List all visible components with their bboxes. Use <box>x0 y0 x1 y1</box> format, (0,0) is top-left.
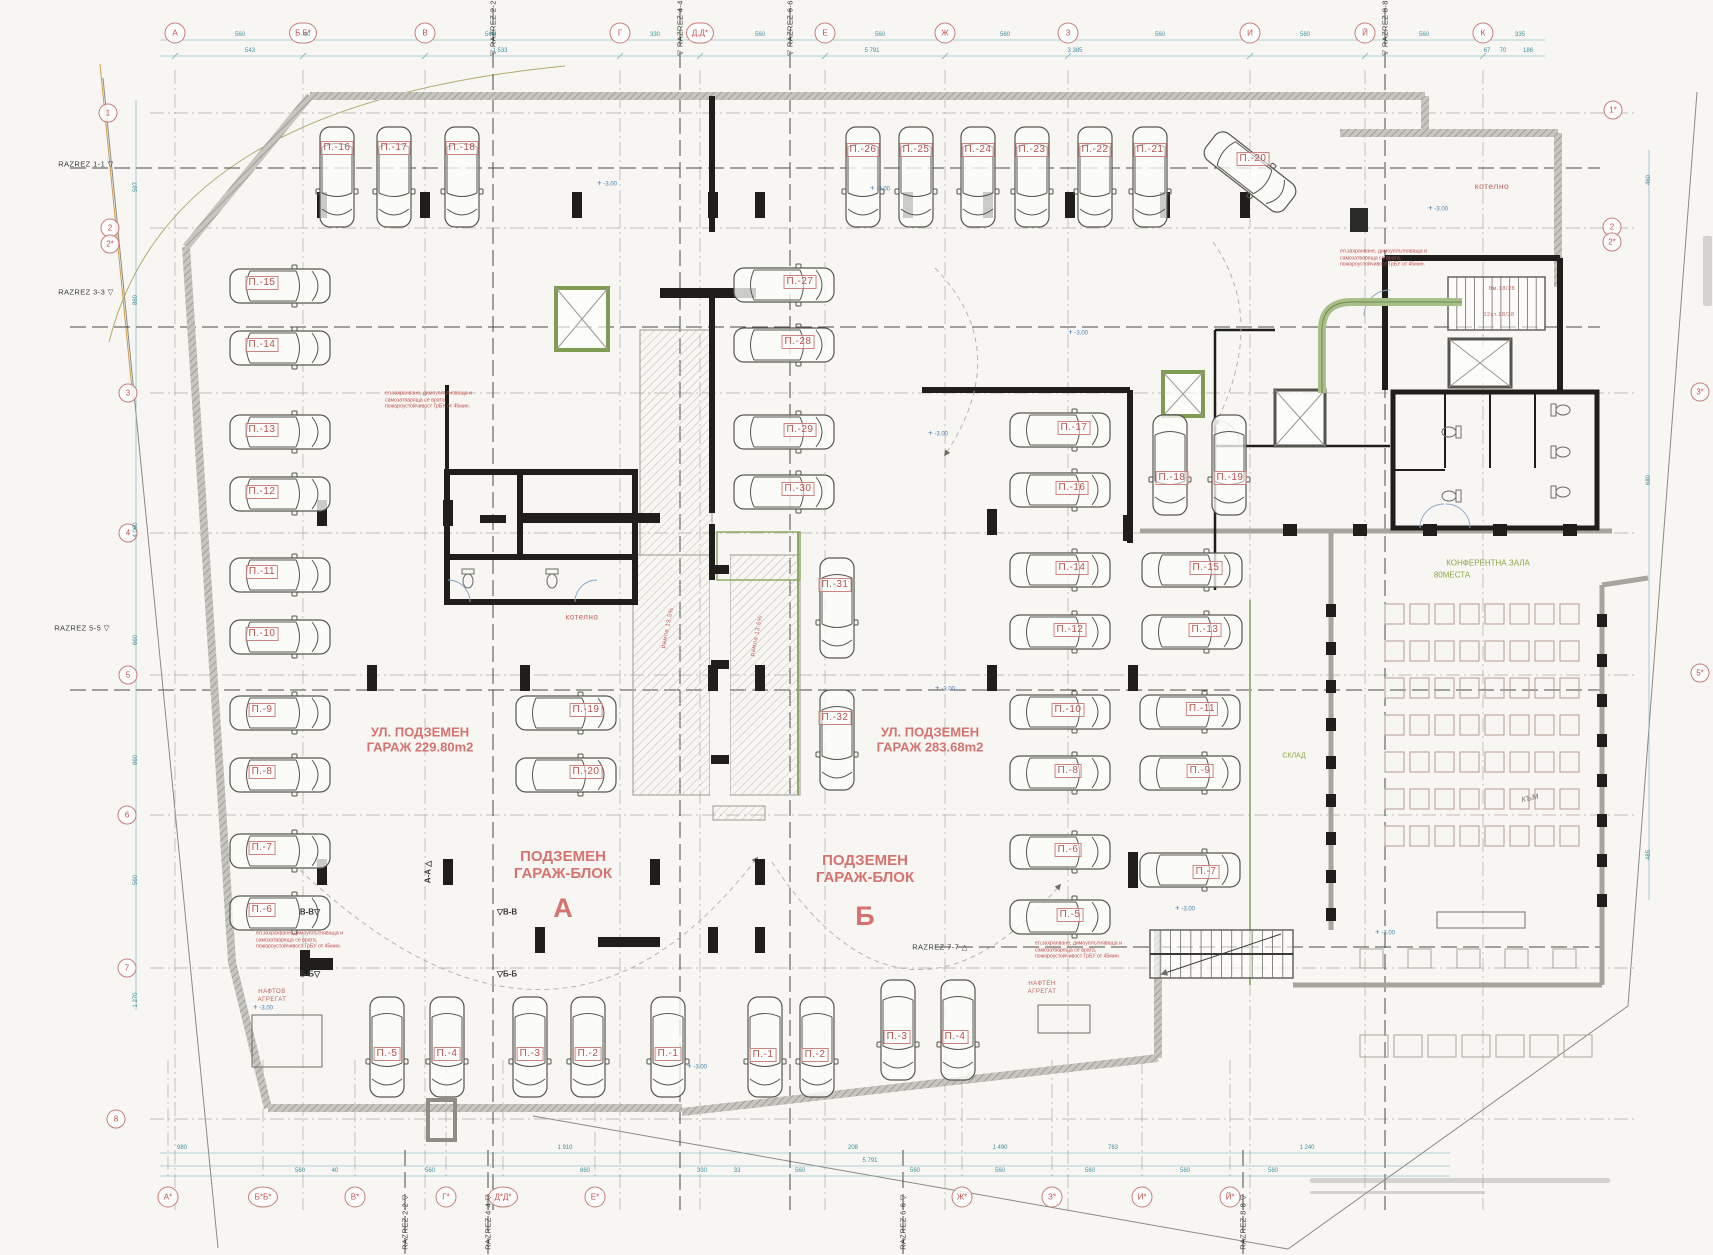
dim-label: 860 <box>133 295 139 305</box>
dim-label: 330 <box>697 1168 707 1174</box>
dim-label: 67 <box>1484 48 1491 54</box>
dim-label: 460 <box>1646 175 1652 185</box>
dim-label: 4 060 <box>133 522 139 537</box>
dim-label: 5 791 <box>862 1158 877 1164</box>
dim-label: 5 791 <box>864 48 879 54</box>
dim-label: 860 <box>580 1168 590 1174</box>
grid-bubble-top: Ж <box>935 23 956 44</box>
parking-spot-label: П.-14 <box>1056 561 1089 575</box>
grid-bubble-row: 3* <box>1691 383 1710 402</box>
parking-spot-label: П.-10 <box>1052 703 1085 717</box>
ramp-label: рампа 13.5% <box>750 615 765 657</box>
parking-spot-label: П.-8 <box>1055 764 1082 778</box>
grid-bubble-row: 1 <box>99 104 118 123</box>
grid-bubble-bottom: А* <box>158 1187 179 1208</box>
grid-bubble-bottom: И* <box>1132 1187 1153 1208</box>
level-mark: + -3.00 <box>1428 204 1448 213</box>
dim-label: 1 240 <box>1299 1145 1314 1151</box>
scan-smudge <box>1310 1191 1485 1194</box>
section-cut-marker: В-В▽ <box>300 908 320 917</box>
parking-spot-label: П.-15 <box>246 276 279 290</box>
grid-bubble-row: 8 <box>107 1110 126 1129</box>
fire-door-annotation: ел.захранване, димоуплътняваща исамозатв… <box>385 390 472 410</box>
grid-bubble-top: З <box>1058 23 1079 44</box>
parking-spot-label: П.-29 <box>784 423 817 437</box>
parking-spot-label: П.-27 <box>784 275 817 289</box>
room-label: КОНФЕРЕНТНА ЗАЛА <box>1446 559 1530 568</box>
room-label: АГРЕГАТ <box>1028 989 1057 995</box>
parking-spot-label: П.-5 <box>1057 908 1084 922</box>
grid-bubble-top: Е <box>815 23 836 44</box>
parking-spot-label: П.-21 <box>1134 143 1167 157</box>
dim-label: 1 533 <box>492 48 507 54</box>
parking-spot-label: П.-19 <box>570 703 603 717</box>
dim-label: 560 <box>1300 32 1310 38</box>
grid-bubble-row: 7 <box>118 959 137 978</box>
dim-label: 560 <box>1268 1168 1278 1174</box>
parking-spot-label: П.-17 <box>1058 421 1091 435</box>
grid-bubble-row: 6 <box>118 806 137 825</box>
parking-spot-label: П.-28 <box>782 335 815 349</box>
room-label: 12ст.18/28 <box>1483 312 1514 318</box>
parking-spot-label: П.-4 <box>942 1030 969 1044</box>
dim-label: 186 <box>1523 48 1533 54</box>
section-label-mid: RAZREZ 7-7 △ <box>912 943 968 952</box>
grid-bubble-bottom: Е* <box>585 1187 606 1208</box>
grid-bubble-row: 3 <box>119 384 138 403</box>
parking-spot-label: П.-16 <box>321 141 354 155</box>
grid-bubble-row: 2* <box>1603 233 1622 252</box>
dim-label: 560 <box>1180 1168 1190 1174</box>
parking-spot-label: П.-12 <box>1054 623 1087 637</box>
section-cut-marker: А-А △ <box>424 861 433 884</box>
room-label: котелно <box>566 613 599 622</box>
room-label: към <box>1520 791 1540 805</box>
garage-area-text: УЛ. ПОДЗЕМЕНГАРАЖ 283.68m2 <box>877 725 984 754</box>
dim-label: 560 <box>1000 32 1010 38</box>
dim-label: 543 <box>245 48 255 54</box>
dim-label: 33 <box>734 1168 741 1174</box>
section-label-top: ▽ RAZREZ 8-8 <box>1381 0 1390 56</box>
section-label-left: RAZREZ 1-1 ▽ <box>58 160 114 169</box>
level-mark: + -3.00 <box>928 429 948 438</box>
dim-label: 597 <box>133 182 139 192</box>
parking-spot-label: П.-7 <box>1193 865 1220 879</box>
room-label: котелно <box>1475 181 1509 191</box>
dim-label: 680 <box>1646 475 1652 485</box>
dim-label: 1 490 <box>992 1145 1007 1151</box>
section-label-top: ▽ RAZREZ 6-6 <box>786 0 795 56</box>
parking-spot-label: П.-32 <box>819 711 852 725</box>
section-cut-marker: ▽В-В <box>497 908 517 917</box>
parking-spot-label: П.-10 <box>246 627 279 641</box>
parking-spot-label: П.-6 <box>249 903 276 917</box>
parking-spot-label: П.-30 <box>782 482 815 496</box>
room-label: СКЛАД <box>1282 753 1305 760</box>
dim-label: 3 385 <box>1067 48 1082 54</box>
level-mark: + -3.00 <box>687 1062 707 1071</box>
parking-spot-label: П.-2 <box>802 1048 829 1062</box>
grid-bubble-top: К <box>1473 23 1494 44</box>
parking-spot-label: П.-15 <box>1190 561 1223 575</box>
grid-bubble-bottom: Г* <box>436 1187 457 1208</box>
dim-label: 70 <box>1500 48 1507 54</box>
section-label-bottom: RAZREZ 8-8 ▽ <box>1239 1194 1248 1250</box>
parking-spot-label: П.-17 <box>378 141 411 155</box>
parking-spot-label: П.-8 <box>249 765 276 779</box>
grid-bubble-top: В <box>415 23 436 44</box>
grid-bubble-bottom: Б*Б* <box>248 1187 278 1208</box>
room-label: 8м.18/28 <box>1489 286 1515 292</box>
section-cut-marker: Б-Б▽ <box>300 970 320 979</box>
grid-bubble-top: И <box>1240 23 1261 44</box>
dim-label: 560 <box>910 1168 920 1174</box>
grid-bubble-row: 1* <box>1604 101 1623 120</box>
room-label: НАФТОВ <box>258 989 285 995</box>
floor-plan-canvas: АБ.Б*ВГД.Д*ЕЖЗИЙКА*Б*Б*В*Г*Д*Д*Е*Ж*З*И*Й… <box>0 0 1713 1255</box>
scan-smudge <box>1310 1178 1610 1183</box>
dim-label: 560 <box>485 32 495 38</box>
parking-spot-label: П.-24 <box>962 143 995 157</box>
parking-spot-label: П.-22 <box>1079 143 1112 157</box>
grid-bubble-top: Д.Д* <box>686 23 714 44</box>
grid-bubble-top: А <box>165 23 186 44</box>
grid-bubble-top: Г <box>610 23 631 44</box>
grid-bubble-row: 5* <box>1691 664 1710 683</box>
parking-spot-label: П.-19 <box>1214 471 1247 485</box>
dim-label: 485 <box>1646 850 1652 860</box>
parking-spot-label: П.-18 <box>1156 471 1189 485</box>
parking-spot-label: П.-11 <box>1186 702 1218 716</box>
grid-bubble-bottom: З* <box>1042 1187 1063 1208</box>
room-label: НАФТЕН <box>1028 981 1055 987</box>
parking-spot-label: П.-23 <box>1016 143 1049 157</box>
level-mark: + -3.00 <box>935 684 955 693</box>
dim-label: 560 <box>133 875 139 885</box>
dim-label: 560 <box>795 1168 805 1174</box>
parking-spot-label: П.-2 <box>575 1047 602 1061</box>
section-label-bottom: RAZREZ 6-6 ▽ <box>899 1194 908 1250</box>
dim-label: 660 <box>133 635 139 645</box>
parking-spot-label: П.-1 <box>750 1048 777 1062</box>
garage-block-title: ПОДЗЕМЕНГАРАЖ-БЛОК <box>514 849 612 883</box>
fire-door-annotation: ел.захранване, димоуплътняваща исамозатв… <box>256 930 343 950</box>
dim-label: 560 <box>425 1168 435 1174</box>
fire-door-annotation: ел.захранване, димоуплътняваща исамозатв… <box>1035 940 1122 960</box>
grid-bubble-bottom: Ж* <box>952 1187 973 1208</box>
parking-spot-label: П.-9 <box>1187 764 1214 778</box>
section-label-bottom: RAZREZ 4-4 ▽ <box>484 1194 493 1250</box>
dim-label: 40 <box>304 32 311 38</box>
parking-spot-label: П.-11 <box>246 565 278 579</box>
dim-label: 560 <box>1155 32 1165 38</box>
dim-label: 560 <box>995 1168 1005 1174</box>
parking-spot-label: П.-13 <box>1189 623 1222 637</box>
level-mark: + -3.00 <box>870 184 890 193</box>
section-label-bottom: RAZREZ 2-2 ▽ <box>401 1194 410 1250</box>
ramp-label: рампа 13.5% <box>661 607 676 649</box>
section-cut-marker: ▽Б-Б <box>497 970 517 979</box>
section-label-left: RAZREZ 5-5 ▽ <box>54 624 110 633</box>
label-overlay: АБ.Б*ВГД.Д*ЕЖЗИЙКА*Б*Б*В*Г*Д*Д*Е*Ж*З*И*Й… <box>0 0 1713 1255</box>
section-label-top: ▽ RAZREZ 4-4 <box>676 0 685 56</box>
level-mark: + -3.00 <box>253 1003 273 1012</box>
grid-bubble-bottom: В* <box>345 1187 366 1208</box>
parking-spot-label: П.-20 <box>1237 152 1270 166</box>
parking-spot-label: П.-16 <box>1056 481 1089 495</box>
garage-block-title: ПОДЗЕМЕНГАРАЖ-БЛОК <box>816 853 914 887</box>
dim-label: 783 <box>1108 1145 1118 1151</box>
level-mark: + -3.00 <box>597 179 617 188</box>
dim-label: 1 910 <box>557 1145 572 1151</box>
dim-label: 560 <box>235 32 245 38</box>
dim-label: 335 <box>1515 32 1525 38</box>
dim-label: 40 <box>332 1168 339 1174</box>
grid-bubble-bottom: Д*Д* <box>488 1187 518 1208</box>
garage-area-text: УЛ. ПОДЗЕМЕНГАРАЖ 229.80m2 <box>367 725 474 754</box>
parking-spot-label: П.-1 <box>655 1047 682 1061</box>
level-mark: + -3.00 <box>1175 904 1195 913</box>
section-label-left: RAZREZ 3-3 ▽ <box>58 288 114 297</box>
scan-smudge <box>1703 236 1712 306</box>
parking-spot-label: П.-18 <box>446 141 479 155</box>
dim-label: 330 <box>650 32 660 38</box>
grid-bubble-bottom: Й* <box>1220 1187 1241 1208</box>
parking-spot-label: П.-13 <box>246 423 279 437</box>
parking-spot-label: П.-14 <box>246 338 279 352</box>
parking-spot-label: П.-4 <box>434 1047 461 1061</box>
parking-spot-label: П.-26 <box>847 143 880 157</box>
parking-spot-label: П.-3 <box>517 1047 544 1061</box>
dim-label: 860 <box>133 755 139 765</box>
dim-label: 560 <box>295 1168 305 1174</box>
parking-spot-label: П.-31 <box>819 578 852 592</box>
dim-label: 208 <box>848 1145 858 1151</box>
dim-label: 560 <box>1085 1168 1095 1174</box>
grid-bubble-row: 2* <box>101 235 120 254</box>
parking-spot-label: П.-5 <box>374 1047 401 1061</box>
room-label: 80МЕСТА <box>1434 571 1470 580</box>
dim-label: 560 <box>875 32 885 38</box>
garage-block-letter: А <box>553 893 573 923</box>
parking-spot-label: П.-6 <box>1055 843 1082 857</box>
dim-label: 1 270 <box>133 992 139 1007</box>
parking-spot-label: П.-12 <box>246 485 279 499</box>
fire-door-annotation: ел.захранване, димоуплътняваща исамозатв… <box>1340 248 1427 268</box>
dim-label: 560 <box>1419 32 1429 38</box>
grid-bubble-top: Й <box>1355 23 1376 44</box>
garage-block-letter: Б <box>855 901 874 931</box>
parking-spot-label: П.-20 <box>570 765 603 779</box>
dim-label: 560 <box>755 32 765 38</box>
parking-spot-label: П.-9 <box>249 703 276 717</box>
level-mark: + -3.00 <box>1068 328 1088 337</box>
parking-spot-label: П.-3 <box>884 1030 911 1044</box>
level-mark: + -3.00 <box>1375 928 1395 937</box>
parking-spot-label: П.-7 <box>249 841 276 855</box>
grid-bubble-row: 5 <box>119 666 138 685</box>
parking-spot-label: П.-25 <box>900 143 933 157</box>
dim-label: 980 <box>177 1145 187 1151</box>
